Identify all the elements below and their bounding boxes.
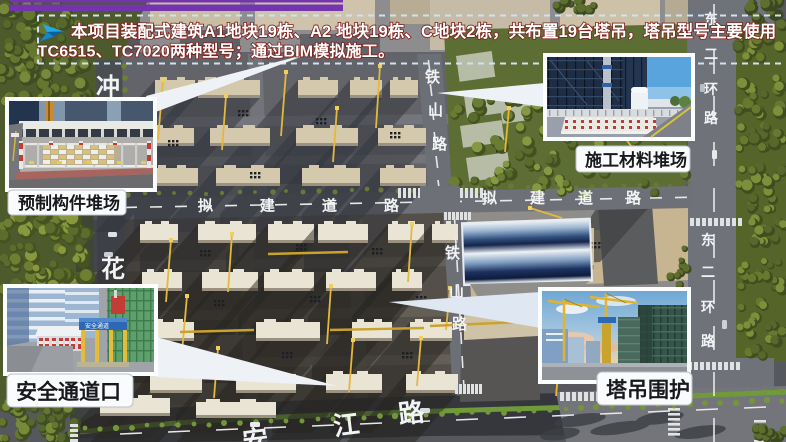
svg-text:东: 东 — [701, 232, 715, 248]
svg-text:安: 安 — [241, 424, 270, 442]
svg-text:路: 路 — [701, 333, 716, 349]
svg-text:路: 路 — [432, 135, 448, 153]
svg-text:道: 道 — [578, 189, 593, 207]
svg-text:塔吊围护: 塔吊围护 — [606, 378, 690, 402]
svg-text:安全通道: 安全通道 — [85, 322, 109, 330]
svg-text:山: 山 — [428, 102, 443, 119]
svg-text:建: 建 — [530, 189, 546, 207]
svg-text:花: 花 — [101, 256, 125, 283]
svg-text:二: 二 — [701, 264, 715, 280]
svg-text:本项目装配式建筑A1地块19栋、A2 地块19栋、C地块2栋: 本项目装配式建筑A1地块19栋、A2 地块19栋、C地块2栋，共布置19台塔吊，… — [71, 21, 776, 41]
svg-text:路: 路 — [384, 197, 400, 215]
svg-text:TC6515、TC7020两种型号；通过BIM模拟施工。: TC6515、TC7020两种型号；通过BIM模拟施工。 — [38, 42, 395, 61]
svg-text:路: 路 — [704, 110, 719, 126]
svg-text:预制构件堆场: 预制构件堆场 — [18, 193, 120, 213]
svg-text:二: 二 — [704, 46, 718, 62]
svg-text:建: 建 — [260, 197, 276, 215]
svg-text:安全通道口: 安全通道口 — [16, 380, 121, 404]
svg-text:铁: 铁 — [445, 244, 460, 262]
svg-text:路: 路 — [452, 315, 468, 333]
svg-text:冲: 冲 — [96, 74, 120, 101]
svg-text:江: 江 — [332, 408, 361, 441]
svg-text:道: 道 — [322, 197, 337, 215]
svg-text:路: 路 — [626, 189, 642, 207]
svg-text:拟: 拟 — [198, 197, 213, 215]
svg-text:拟: 拟 — [482, 189, 497, 207]
svg-text:铁: 铁 — [425, 68, 440, 86]
svg-text:环: 环 — [701, 299, 715, 315]
svg-text:环: 环 — [704, 81, 718, 97]
svg-text:路: 路 — [397, 396, 427, 429]
svg-text:施工材料堆场: 施工材料堆场 — [585, 150, 687, 170]
